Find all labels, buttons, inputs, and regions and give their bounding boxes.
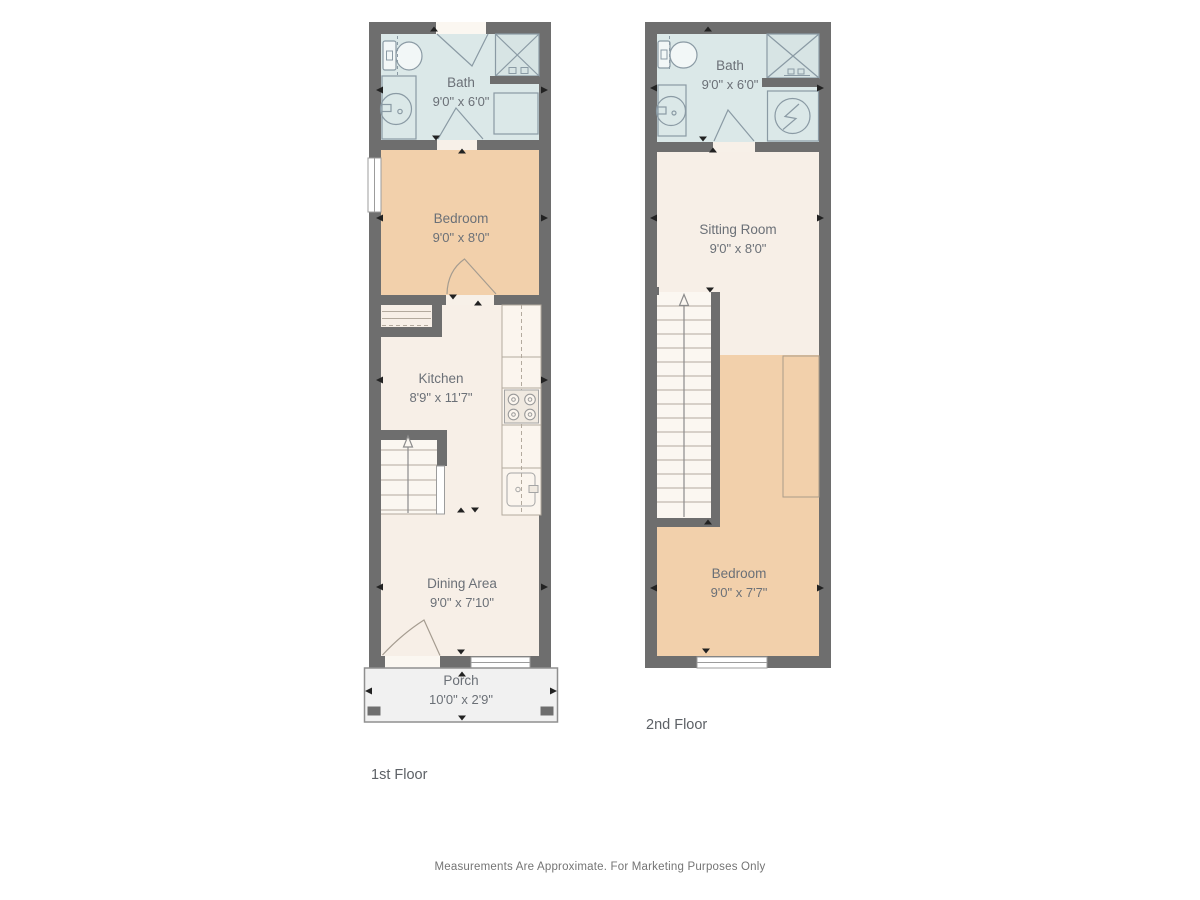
room-label-bath-2f: Bath 9'0" x 6'0" — [702, 56, 759, 94]
floor-plan-drawing — [0, 0, 1200, 900]
room-name: Bath — [702, 56, 759, 75]
floor-plan-canvas: Bath 9'0" x 6'0" Bedroom 9'0" x 8'0" Kit… — [0, 0, 1200, 900]
room-label-dining-1f: Dining Area 9'0" x 7'10" — [427, 574, 497, 612]
room-label-sitting-room-2f: Sitting Room 9'0" x 8'0" — [699, 220, 776, 258]
room-name: Sitting Room — [699, 220, 776, 239]
room-name: Bedroom — [711, 564, 768, 583]
shower-icon — [496, 34, 540, 76]
room-name: Bedroom — [433, 209, 490, 228]
room-dimensions: 9'0" x 7'7" — [711, 583, 768, 602]
door-opening — [385, 656, 440, 668]
room-label-bedroom-2f: Bedroom 9'0" x 7'7" — [711, 564, 768, 602]
window-icon — [471, 657, 530, 668]
room-dimensions: 9'0" x 6'0" — [702, 75, 759, 94]
stairs-up-icon — [651, 287, 720, 527]
wall-stub — [490, 76, 539, 84]
wall-stub — [369, 327, 442, 337]
room-dimensions: 9'0" x 7'10" — [427, 593, 497, 612]
room-dimensions: 10'0" x 2'9" — [429, 690, 493, 709]
room-dimensions: 9'0" x 8'0" — [433, 228, 490, 247]
disclaimer-text: Measurements Are Approximate. For Market… — [0, 861, 1200, 873]
door-opening — [436, 22, 486, 34]
porch-post-icon — [541, 707, 554, 716]
room-label-kitchen-1f: Kitchen 8'9" x 11'7" — [409, 369, 472, 407]
shower-icon — [767, 34, 819, 78]
room-label-bath-1f: Bath 9'0" x 6'0" — [433, 73, 490, 111]
door-opening — [437, 140, 477, 150]
door-opening — [713, 142, 755, 152]
room-dimensions: 9'0" x 8'0" — [699, 239, 776, 258]
floor-label-2nd: 2nd Floor — [646, 717, 707, 733]
room-name: Dining Area — [427, 574, 497, 593]
floor-label-1st: 1st Floor — [371, 767, 427, 783]
room-dimensions: 9'0" x 6'0" — [433, 92, 490, 111]
window-icon — [697, 657, 767, 668]
porch-post-icon — [368, 707, 381, 716]
room-label-porch-1f: Porch 10'0" x 2'9" — [429, 671, 493, 709]
wall-stub — [762, 78, 819, 87]
room-name: Kitchen — [409, 369, 472, 388]
counter-icon — [502, 305, 541, 515]
window-icon — [368, 158, 381, 212]
stove-icon — [505, 390, 539, 423]
room-name: Bath — [433, 73, 490, 92]
room-label-bedroom-1f: Bedroom 9'0" x 8'0" — [433, 209, 490, 247]
room-dimensions: 8'9" x 11'7" — [409, 388, 472, 407]
room-name: Porch — [429, 671, 493, 690]
